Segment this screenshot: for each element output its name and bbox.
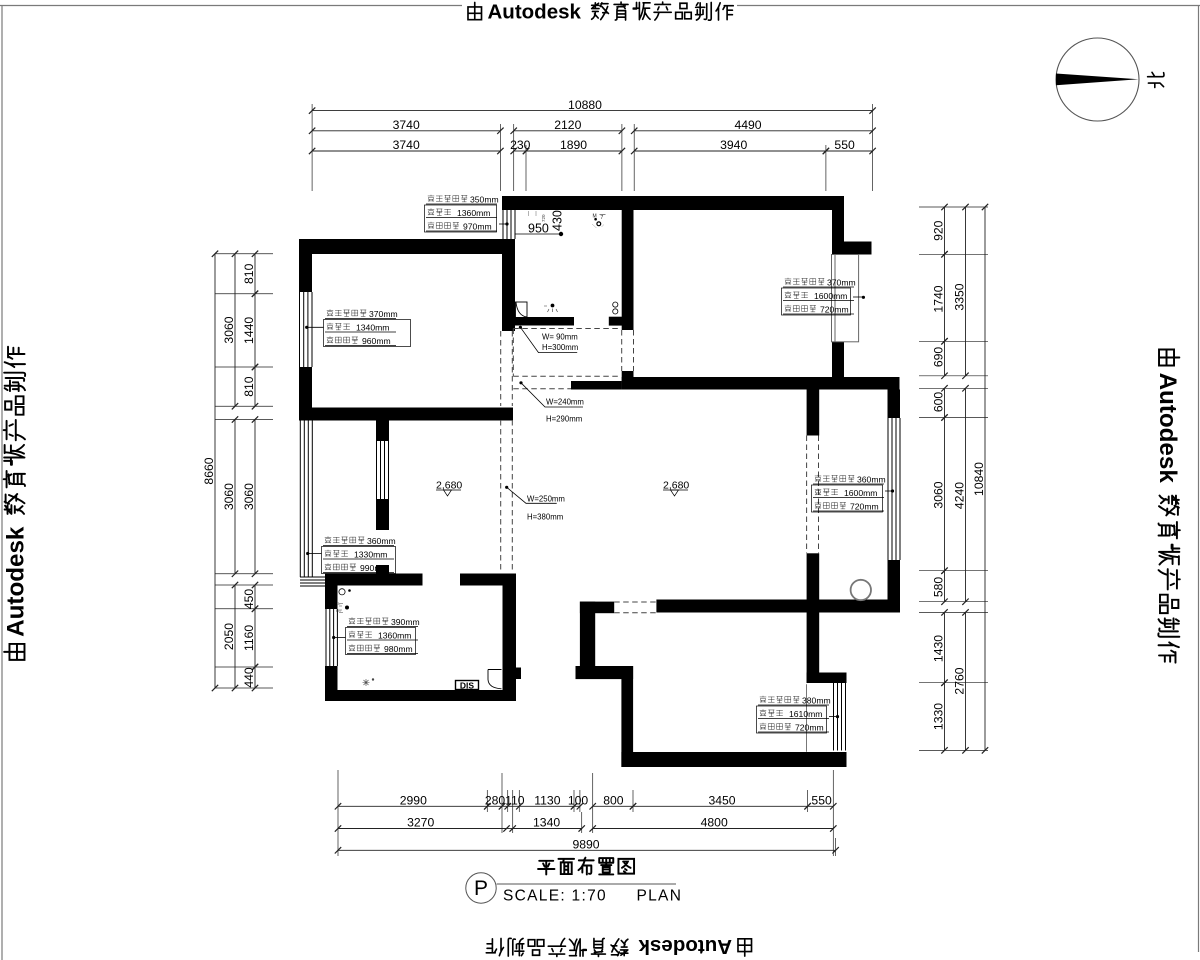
svg-text:370mm: 370mm: [827, 277, 856, 287]
svg-text:PLAN: PLAN: [637, 888, 683, 905]
svg-text:Autodesk: Autodesk: [488, 1, 582, 24]
svg-text:1440: 1440: [242, 317, 256, 344]
svg-text:SCALE: 1:70: SCALE: 1:70: [503, 888, 607, 905]
svg-text:580: 580: [932, 577, 946, 598]
svg-text:9890: 9890: [572, 838, 599, 852]
svg-text:4800: 4800: [701, 816, 728, 830]
svg-text:1600mm: 1600mm: [844, 488, 877, 498]
svg-text:3060: 3060: [932, 481, 946, 508]
svg-text:10840: 10840: [972, 462, 986, 496]
svg-text:990mm: 990mm: [360, 563, 389, 573]
svg-text:3060: 3060: [222, 316, 236, 343]
svg-text:550: 550: [811, 794, 832, 808]
svg-text:P: P: [474, 877, 488, 900]
svg-text:390mm: 390mm: [391, 617, 420, 627]
svg-text:450: 450: [242, 589, 256, 610]
svg-text:360mm: 360mm: [857, 474, 886, 484]
svg-text:Autodesk: Autodesk: [2, 526, 29, 637]
svg-text:2760: 2760: [953, 667, 967, 694]
svg-text:H=380mm: H=380mm: [527, 513, 563, 522]
svg-text:3350: 3350: [953, 283, 967, 310]
svg-text:H=290mm: H=290mm: [546, 415, 582, 424]
svg-text:3740: 3740: [393, 138, 420, 152]
svg-text:3450: 3450: [708, 794, 735, 808]
svg-text:8660: 8660: [202, 457, 216, 484]
svg-text:W=240mm: W=240mm: [546, 398, 584, 407]
svg-text:2990: 2990: [400, 794, 427, 808]
svg-text:1160: 1160: [242, 625, 256, 651]
svg-text:690: 690: [932, 347, 946, 368]
svg-text:1740: 1740: [932, 285, 946, 312]
svg-text:1130: 1130: [534, 794, 560, 808]
svg-text:H=300mm: H=300mm: [542, 343, 578, 352]
svg-text:1330: 1330: [932, 703, 946, 730]
svg-text:3940: 3940: [720, 138, 747, 152]
svg-text:1330mm: 1330mm: [354, 549, 387, 559]
svg-text:3060: 3060: [222, 483, 236, 510]
svg-text:100: 100: [568, 794, 589, 808]
svg-text:920: 920: [932, 220, 946, 241]
svg-text:7: 7: [601, 215, 604, 221]
svg-text:800: 800: [603, 794, 624, 808]
svg-text:1360mm: 1360mm: [378, 630, 411, 640]
svg-text:720mm: 720mm: [850, 501, 879, 511]
svg-text:1430: 1430: [932, 635, 946, 662]
svg-text:960mm: 960mm: [362, 336, 391, 346]
svg-text:810: 810: [242, 263, 256, 284]
svg-text:1340mm: 1340mm: [356, 322, 389, 332]
svg-text:720mm: 720mm: [820, 304, 849, 314]
svg-text:360mm: 360mm: [367, 536, 396, 546]
svg-text:720mm: 720mm: [795, 722, 824, 732]
svg-text:W= 90mm: W= 90mm: [542, 333, 578, 342]
svg-text:550: 550: [834, 138, 855, 152]
svg-text:DIS: DIS: [460, 680, 475, 690]
svg-text:810: 810: [242, 376, 256, 397]
svg-text:110: 110: [505, 794, 525, 808]
svg-text:370mm: 370mm: [369, 309, 398, 319]
svg-text:1890: 1890: [560, 138, 587, 152]
svg-text:W=250mm: W=250mm: [527, 495, 565, 504]
svg-text:Autodesk: Autodesk: [638, 935, 732, 958]
svg-text:980mm: 980mm: [384, 644, 413, 654]
svg-text:1610mm: 1610mm: [789, 709, 822, 719]
svg-text:4240: 4240: [953, 482, 967, 509]
svg-text:4490: 4490: [734, 118, 761, 132]
svg-text:1360mm: 1360mm: [457, 208, 490, 218]
svg-text:350mm: 350mm: [470, 194, 499, 204]
svg-text:3740: 3740: [393, 118, 420, 132]
svg-text:600: 600: [932, 392, 946, 413]
svg-text:2120: 2120: [554, 118, 581, 132]
svg-text:10880: 10880: [568, 98, 602, 112]
svg-text:2050: 2050: [222, 623, 236, 650]
svg-text:720: 720: [541, 214, 546, 222]
svg-text:380mm: 380mm: [802, 695, 831, 705]
svg-text:R=: R=: [336, 608, 342, 613]
svg-text:1600mm: 1600mm: [814, 291, 847, 301]
svg-text:440: 440: [242, 667, 256, 688]
svg-text:3270: 3270: [407, 816, 434, 830]
svg-text:Autodesk: Autodesk: [1154, 373, 1181, 484]
svg-text:950: 950: [528, 222, 549, 236]
svg-text:1340: 1340: [533, 816, 560, 830]
svg-text:3060: 3060: [242, 483, 256, 510]
svg-text:970mm: 970mm: [463, 221, 492, 231]
svg-text:430: 430: [551, 210, 565, 231]
